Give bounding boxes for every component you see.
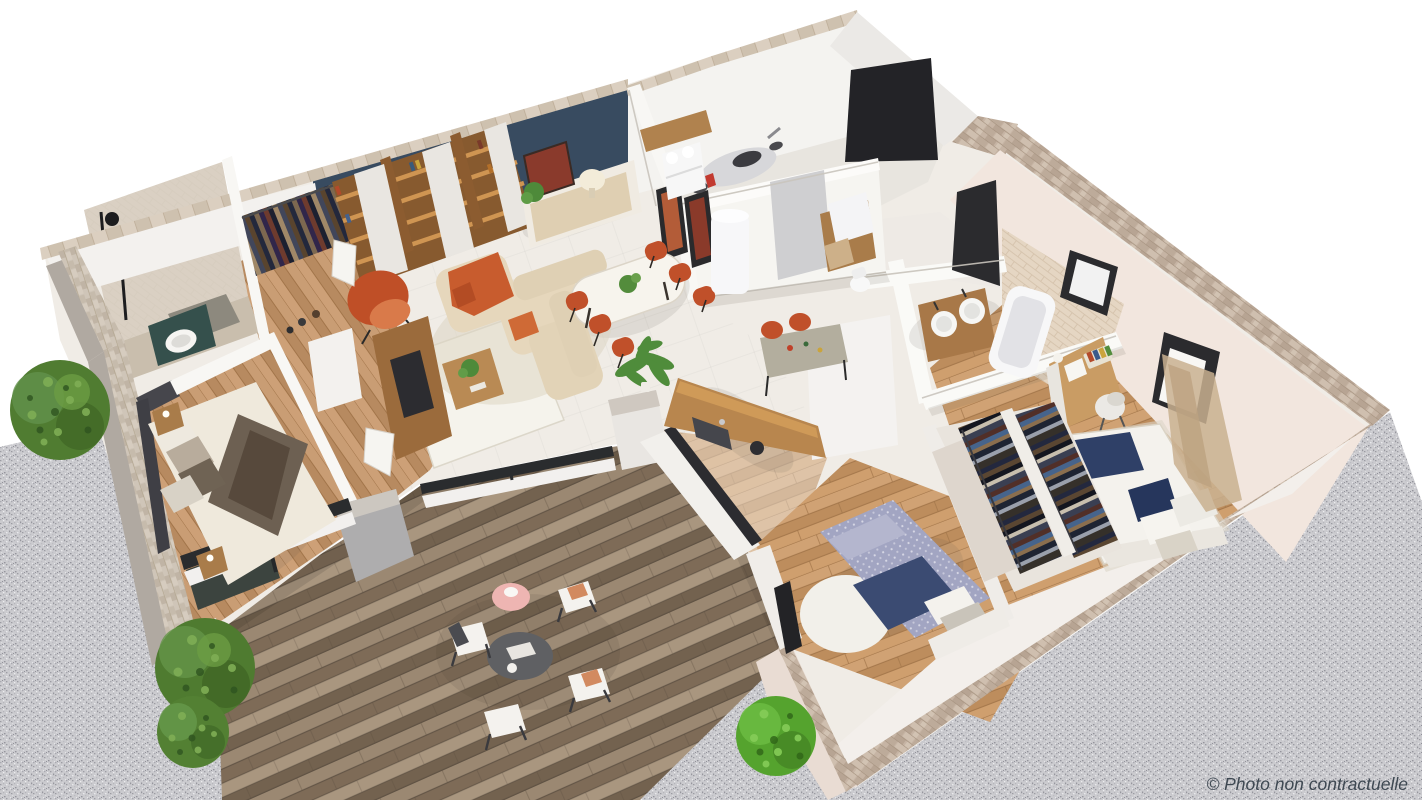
svg-text:© Photo non contractuelle: © Photo non contractuelle [1206, 774, 1408, 794]
